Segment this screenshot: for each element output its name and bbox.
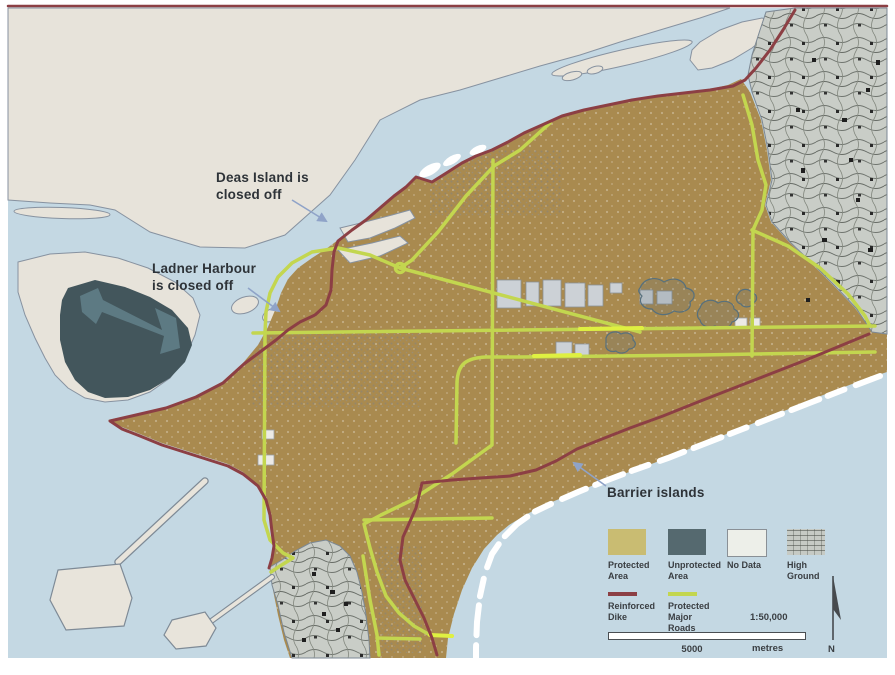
legend-label-no-data: No Data	[727, 560, 761, 571]
legend-label-protected-area: Protected Area	[608, 560, 650, 582]
legend-label-unprotected-area: Unprotected Area	[668, 560, 721, 582]
map-page: Deas Island is closed off Ladner Harbour…	[0, 0, 895, 675]
legend-swatch-protected-area	[608, 529, 646, 555]
legend-label-reinforced-dike: Reinforced Dike	[608, 601, 655, 623]
road-south-horizontal	[364, 518, 492, 520]
legend-swatch-no-data	[727, 529, 767, 557]
map-canvas	[0, 0, 895, 675]
annotation-ladner-harbour: Ladner Harbour is closed off	[152, 261, 256, 295]
scale-ratio: 1:50,000	[750, 612, 788, 623]
scale-bar	[608, 632, 806, 640]
legend-label-high-ground: High Ground	[787, 560, 820, 582]
north-label: N	[828, 644, 835, 655]
annotation-deas-island: Deas Island is closed off	[216, 170, 309, 204]
annotation-barrier-islands: Barrier islands	[607, 485, 705, 502]
legend-line-protected-roads	[668, 592, 697, 596]
scale-distance: 5000	[672, 644, 712, 655]
legend-swatch-high-ground	[787, 529, 825, 555]
scale-unit: metres	[752, 643, 783, 654]
legend-swatch-unprotected-area	[668, 529, 706, 555]
port-terminal-pad	[50, 564, 132, 630]
legend-label-protected-roads: Protected Major Roads	[668, 601, 710, 633]
road-south-spur	[377, 638, 420, 639]
legend-line-reinforced-dike	[608, 592, 637, 596]
